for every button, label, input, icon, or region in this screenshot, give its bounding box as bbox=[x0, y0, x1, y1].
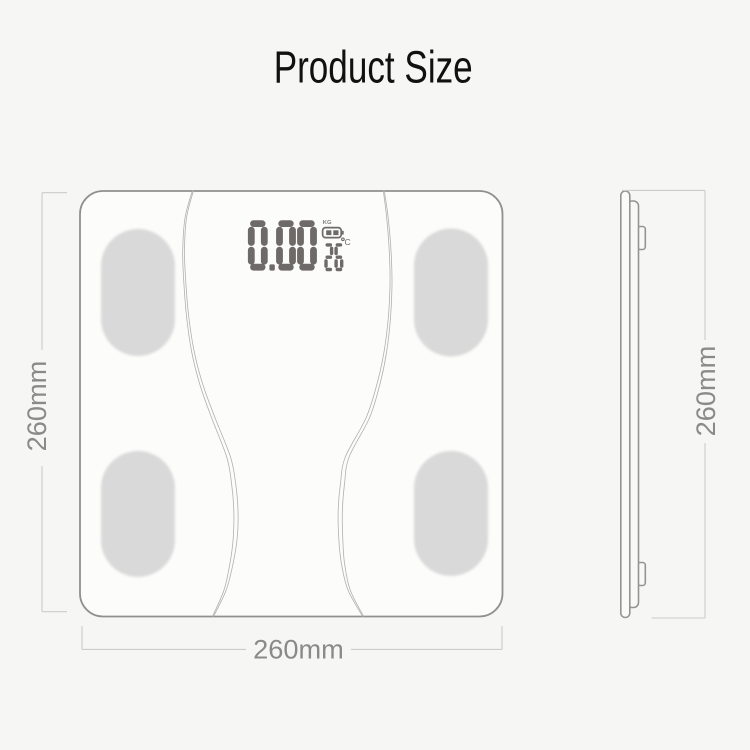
svg-text:260mm: 260mm bbox=[253, 634, 344, 665]
svg-text:C: C bbox=[345, 237, 351, 247]
svg-text:KG: KG bbox=[323, 220, 332, 226]
svg-text:260mm: 260mm bbox=[21, 361, 52, 452]
svg-text:Product Size: Product Size bbox=[274, 42, 473, 93]
svg-text:260mm: 260mm bbox=[690, 346, 721, 437]
